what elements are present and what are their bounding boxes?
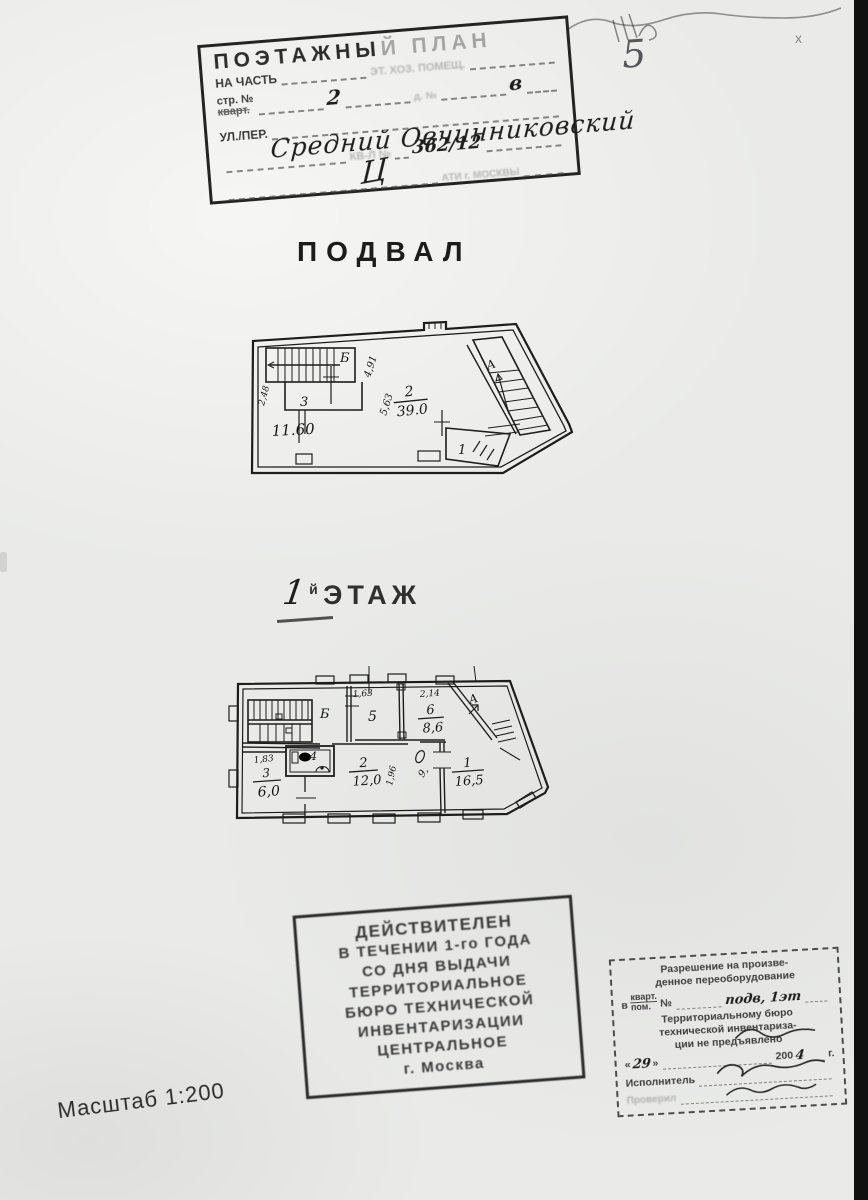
floor1-dim-196: 1,96 bbox=[385, 765, 399, 787]
validity-stamp: ДЕЙСТВИТЕЛЕН В ТЕЧЕНИИ 1-го ГОДА СО ДНЯ … bbox=[292, 895, 585, 1099]
basement-heading: ПОДВАЛ bbox=[297, 236, 472, 268]
bti-faint-label: АТИ г. МОСКВЫ bbox=[441, 167, 520, 184]
pencil-page-number: 5 bbox=[620, 31, 647, 77]
floor1-room3-number: 3 bbox=[262, 766, 271, 781]
checked-label: Проверил bbox=[626, 1092, 676, 1108]
basement-stair-a-label: А bbox=[483, 357, 497, 374]
floor1-stair-hatch bbox=[248, 700, 312, 742]
floor1-room1-number: 1 bbox=[463, 756, 472, 772]
floor1-room1-area: 16,5 bbox=[454, 773, 484, 790]
house-letter-handwritten: в bbox=[508, 70, 523, 95]
floor1-heading-word: ЭТАЖ bbox=[323, 580, 421, 610]
basement-floor-plan: Б 3 2,48 11.60 2 39.0 4,91 5,63 А 1 bbox=[220, 314, 604, 486]
premises-handwritten: подв, 1эт bbox=[725, 990, 802, 1007]
floor1-room6-area: 8,6 bbox=[422, 720, 444, 736]
basement-stair-b-label: Б bbox=[339, 351, 350, 366]
date-day-handwritten: 29 bbox=[632, 1057, 651, 1071]
quote-close: » bbox=[652, 1057, 659, 1070]
floor1-room3-area: 6,0 bbox=[257, 783, 280, 801]
floor1-room2-area: 12,0 bbox=[352, 773, 382, 790]
scan-edge-strip bbox=[854, 0, 868, 1200]
floor1-heading: 1 й ЭТАЖ bbox=[283, 578, 421, 611]
basement-room1-outline bbox=[446, 428, 510, 466]
building-number-handwritten: 2 bbox=[326, 85, 341, 110]
floor1-heading-number: 1 bbox=[281, 578, 307, 608]
floor1-room5-label: 5 bbox=[368, 709, 377, 725]
kvartal-number-handwritten: 362/12 bbox=[412, 132, 482, 159]
floor1-room6-number: 6 bbox=[426, 703, 435, 719]
number-sign: № bbox=[660, 997, 672, 1011]
pom-label: пом. bbox=[631, 1002, 658, 1012]
fill-line bbox=[225, 148, 346, 174]
floor-plan-header-stamp: ПОЭТАЖНЫЙ ПЛАН НА ЧАСТЬ ЭТ. ХОЗ. ПОМЕЩ. … bbox=[197, 15, 581, 204]
basement-room1-label: 1 bbox=[458, 443, 466, 458]
floor1-dim-163: 1,63 bbox=[353, 689, 374, 700]
part-label: НА ЧАСТЬ bbox=[215, 72, 278, 91]
executor-signatures bbox=[704, 1011, 839, 1108]
pencil-cross-mark: x bbox=[795, 30, 802, 46]
floor1-heading-suffix-small: й bbox=[309, 581, 319, 597]
fill-line bbox=[526, 76, 557, 94]
fill-line bbox=[523, 158, 564, 177]
inspector-signature: Ц bbox=[360, 151, 388, 192]
first-floor-plan: Б 1,63 5 2,14 6 8,6 А 4 1,83 3 bbox=[220, 664, 572, 828]
quote-open: « bbox=[624, 1059, 631, 1072]
permission-stamp: Разрешение на произве- денное переоборуд… bbox=[609, 947, 847, 1118]
fill-line bbox=[676, 995, 722, 1010]
floor1-heading-underline bbox=[277, 616, 333, 623]
scanned-floor-plan-page: 5 x ПОЭТАЖНЫЙ ПЛАН НА ЧАСТЬ ЭТ. ХОЗ. ПОМ… bbox=[0, 0, 868, 1200]
edge-smudge bbox=[0, 552, 7, 572]
basement-dim-1160: 11.60 bbox=[271, 420, 315, 440]
house-number-faint-label: д. № bbox=[413, 90, 437, 103]
basement-room3-label: 3 bbox=[300, 395, 308, 410]
fill-line bbox=[257, 94, 323, 115]
floor1-room4-label: 4 bbox=[309, 750, 317, 763]
floor1-door-note: 9, bbox=[416, 766, 430, 780]
fill-line bbox=[228, 168, 439, 201]
basement-dim-248: 2,48 bbox=[257, 385, 272, 408]
floor1-dim-214: 2,14 bbox=[419, 689, 441, 700]
floor1-dim-183: 1,83 bbox=[253, 754, 274, 766]
pencil-scribble bbox=[565, 2, 855, 57]
floor1-stair-a-steps bbox=[492, 720, 520, 760]
basement-room2-area: 39.0 bbox=[396, 401, 429, 420]
fill-line bbox=[394, 143, 409, 160]
kvart-struck-label: кварт. bbox=[217, 105, 254, 119]
scale-stamp: Масштаб 1:200 bbox=[56, 1078, 226, 1124]
floor1-room2-number: 2 bbox=[358, 756, 368, 772]
basement-stair-a-outline bbox=[473, 337, 550, 435]
permission-prefix: в bbox=[621, 1000, 628, 1013]
fill-line bbox=[805, 989, 828, 1002]
floor1-stair-b-label: Б bbox=[319, 707, 330, 722]
fill-line bbox=[440, 80, 506, 101]
basement-room2-number: 2 bbox=[403, 384, 415, 401]
basement-dim-563: 5,63 bbox=[378, 392, 395, 417]
fill-line bbox=[344, 87, 410, 108]
executor-label: Исполнитель bbox=[625, 1074, 695, 1091]
street-label: УЛ./ПЕР. bbox=[219, 127, 268, 145]
basement-dim-491: 4,91 bbox=[362, 354, 380, 380]
